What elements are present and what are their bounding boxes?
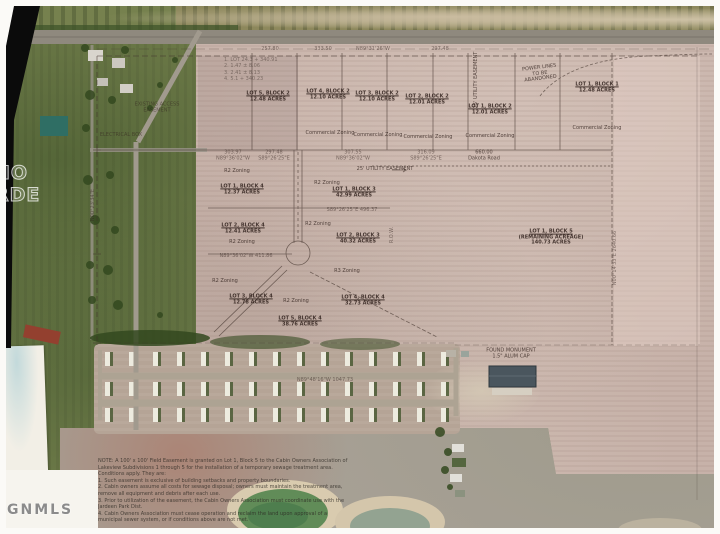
bearing-label: S89°26'25"E 496.37: [327, 208, 378, 214]
zoning-label: Commercial Zoning: [354, 133, 403, 139]
farm-building: [455, 490, 465, 497]
utility-easement-label: 25' UTILITY EASEMENT: [474, 52, 480, 109]
shed: [461, 351, 469, 357]
lot-label: LOT 4, BLOCK 432.73 ACRES: [341, 295, 384, 306]
house: [120, 84, 133, 93]
buildings: [23, 50, 536, 497]
zoning-label: R2 Zoning: [224, 169, 250, 175]
cul-de-sac: [286, 241, 310, 265]
aerial-photo: LOT 5, BLOCK 212.48 ACRES LOT 4, BLOCK 2…: [6, 6, 714, 528]
lot-label: LOT 2, BLOCK 340.32 ACRES: [336, 233, 379, 244]
bearing-label: N89°48'16"W 1047.73: [297, 378, 353, 384]
easement-notes: NOTE: A 100' x 100' Field Easement is gr…: [98, 458, 347, 524]
row-label: R.O.W.: [390, 227, 396, 243]
lot-label: LOT 2, BLOCK 412.41 ACRES: [221, 223, 264, 234]
dakota-road-label: 660.00Dakota Road: [468, 150, 500, 161]
utility-easement-label: 25' UTILITY EASEMENT: [357, 167, 414, 173]
sand-patch: [618, 518, 702, 528]
remainder-lot-label: LOT 1, BLOCK 5(REMAINING ACREAGE)140.73 …: [519, 230, 584, 247]
lot-label: LOT 1, BLOCK 412.37 ACRES: [220, 184, 263, 195]
zoning-label: Commercial Zoning: [466, 134, 515, 140]
white-margin-bottom-left: [6, 470, 98, 528]
zoning-label: Commercial Zoning: [404, 135, 453, 141]
bearing-label: N00°23'34"E: [91, 189, 97, 221]
bearing-label: 316.09S89°26'25"E: [410, 150, 442, 161]
electrical-box-label: ELECTRICAL BOX: [100, 133, 142, 139]
listing-photo-frame: LOT 5, BLOCK 212.48 ACRES LOT 4, BLOCK 2…: [0, 0, 720, 534]
distance-label: 297.48: [431, 47, 449, 53]
lot-label: LOT 2, BLOCK 212.01 ACRES: [405, 94, 448, 105]
distance-label: 333.50: [314, 47, 332, 53]
bearing-label: 297.48S89°26'25"E: [258, 150, 290, 161]
watermark-partial-2: RDE: [6, 184, 40, 206]
lot-label: LOT 4, BLOCK 212.10 ACRES: [306, 89, 349, 100]
zoning-label: R2 Zoning: [229, 240, 255, 246]
bearing-label: 307.55N89°36'02"W: [336, 150, 370, 161]
farm-building: [450, 474, 462, 482]
bearing-label: 303.97N89°36'02"W: [216, 150, 250, 161]
aerial-world: LOT 5, BLOCK 212.48 ACRES LOT 4, BLOCK 2…: [6, 6, 714, 528]
watermark-partial-1: NO: [6, 162, 28, 184]
power-line-curve: [540, 54, 712, 96]
zoning-label: R2 Zoning: [283, 299, 309, 305]
lot-label: LOT 3, BLOCK 412.78 ACRES: [229, 294, 272, 305]
house: [88, 50, 103, 61]
lot-label: LOT 5, BLOCK 438.76 ACRES: [278, 316, 321, 327]
farm-building: [452, 458, 466, 467]
zoning-label: R3 Zoning: [334, 269, 360, 275]
lot-label: LOT 3, BLOCK 212.10 ACRES: [355, 91, 398, 102]
found-monument-label: FOUND MONUMENT1.5" ALUM CAP: [486, 348, 536, 359]
house: [97, 78, 108, 86]
bearing-label: N89°31'26"W: [356, 47, 390, 53]
lot-label: LOT 1, BLOCK 112.48 ACRES: [575, 82, 618, 93]
house: [112, 58, 125, 68]
teal-roof-building: [40, 116, 68, 136]
lot-label: LOT 5, BLOCK 212.48 ACRES: [246, 91, 289, 102]
lot-label: LOT 1, BLOCK 342.99 ACRES: [332, 187, 375, 198]
bearing-label: N00°14'33"E 2640.66: [613, 231, 619, 285]
survey-lines: [93, 47, 712, 500]
red-barn: [23, 324, 61, 344]
plat-legend: 1. LOT 24.3 + 340.91 2. 1.47 ± 8.06 3. 2…: [224, 57, 278, 83]
topo-map-fragment: [6, 345, 48, 479]
shed: [446, 350, 456, 357]
mls-watermark: GNMLS: [7, 502, 73, 518]
farm-building: [452, 444, 464, 452]
distance-label: 257.80: [261, 47, 279, 53]
zoning-label: Commercial Zoning: [573, 126, 622, 132]
diagonal-road: [138, 31, 200, 142]
access-easement-label: EXISTING ACCESSEASEMENT: [135, 102, 180, 113]
building-apron: [492, 388, 532, 395]
zoning-label: R2 Zoning: [212, 279, 238, 285]
zoning-label: R2 Zoning: [305, 222, 331, 228]
zoning-label: Commercial Zoning: [306, 131, 355, 137]
bearing-label: N89°36'02"W 411.86: [219, 254, 272, 260]
